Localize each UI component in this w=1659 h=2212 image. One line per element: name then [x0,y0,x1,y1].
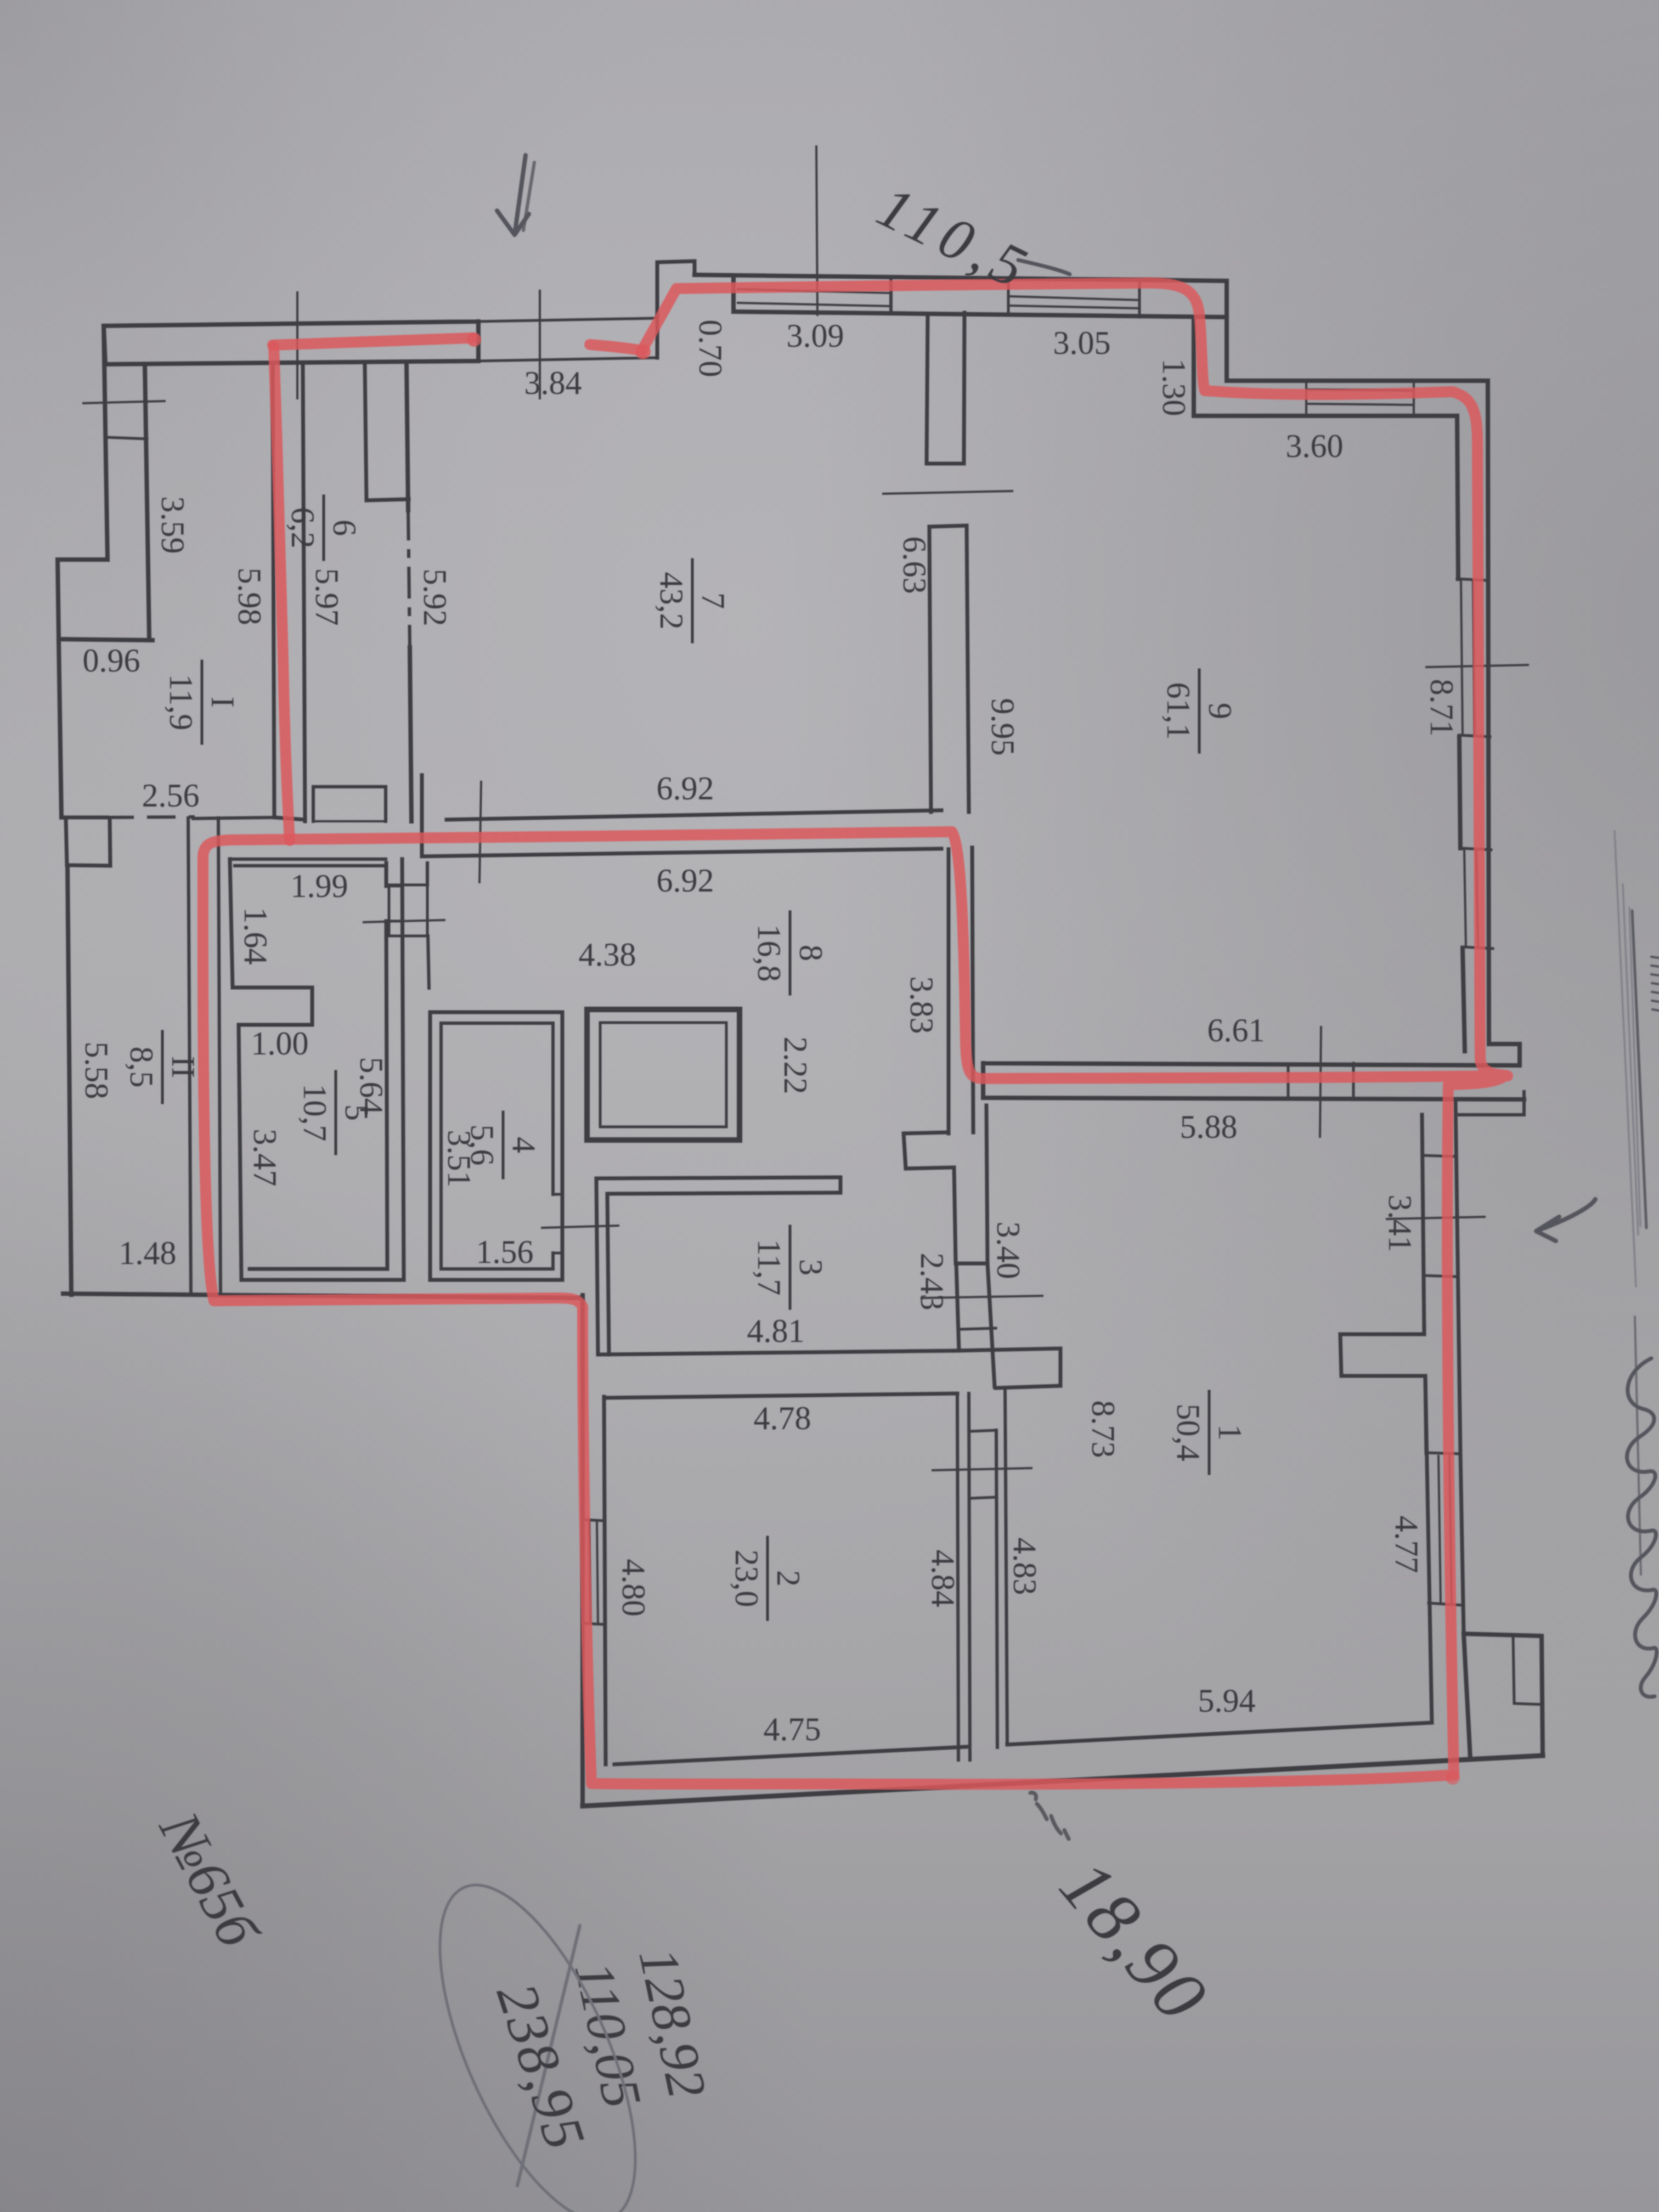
svg-text:5.94: 5.94 [1198,1683,1256,1719]
svg-text:5.88: 5.88 [1180,1109,1238,1145]
svg-text:1: 1 [1212,1424,1248,1441]
svg-text:6.92: 6.92 [657,862,714,899]
svg-text:4.84: 4.84 [925,1550,961,1607]
svg-text:4.81: 4.81 [747,1313,805,1349]
svg-text:2.56: 2.56 [142,777,200,814]
svg-text:11,9: 11,9 [163,674,199,731]
svg-text:3.60: 3.60 [1286,428,1344,464]
svg-text:61,1: 61,1 [1160,682,1197,740]
svg-text:I: I [205,697,241,708]
svg-text:4.80: 4.80 [616,1559,652,1617]
svg-text:7: 7 [695,592,731,609]
svg-text:8: 8 [793,945,829,961]
svg-text:4.75: 4.75 [764,1711,821,1747]
svg-text:3.40: 3.40 [990,1222,1026,1279]
svg-text:1.30: 1.30 [1156,359,1192,416]
svg-text:11,7: 11,7 [751,1239,787,1296]
svg-text:23,0: 23,0 [729,1550,765,1607]
svg-text:3.59: 3.59 [155,496,191,554]
svg-text:6.63: 6.63 [896,537,933,594]
svg-text:16,8: 16,8 [751,924,787,982]
svg-text:9: 9 [1202,703,1238,719]
svg-text:6.61: 6.61 [1207,1012,1265,1048]
svg-text:5.97: 5.97 [309,568,345,626]
svg-text:1.64: 1.64 [238,907,274,965]
svg-text:4.77: 4.77 [1389,1516,1425,1573]
svg-text:9.95: 9.95 [985,698,1021,756]
svg-text:3.83: 3.83 [904,977,940,1034]
svg-text:2.43: 2.43 [914,1253,950,1311]
svg-text:0.70: 0.70 [692,320,729,377]
svg-text:1.56: 1.56 [476,1234,534,1270]
svg-text:4.83: 4.83 [1007,1538,1043,1595]
svg-text:1.48: 1.48 [119,1235,177,1271]
svg-text:5: 5 [338,1104,375,1121]
svg-text:50,4: 50,4 [1170,1404,1206,1462]
svg-text:1.99: 1.99 [291,868,348,904]
svg-text:6.92: 6.92 [657,770,714,806]
svg-text:II: II [165,1056,201,1078]
svg-text:4.78: 4.78 [754,1400,811,1436]
svg-text:43,2: 43,2 [653,572,690,630]
svg-text:5.58: 5.58 [78,1042,115,1099]
svg-text:3.41: 3.41 [1382,1195,1418,1252]
svg-text:10,7: 10,7 [297,1084,333,1142]
svg-text:2: 2 [770,1570,806,1587]
svg-text:1.00: 1.00 [251,1025,309,1062]
svg-text:3.47: 3.47 [247,1129,283,1187]
svg-text:6,2: 6,2 [285,507,321,549]
svg-text:5,6: 5,6 [464,1125,500,1166]
svg-text:8,5: 8,5 [123,1047,160,1088]
svg-text:4: 4 [506,1137,542,1153]
svg-text:5.92: 5.92 [417,569,453,627]
svg-text:6: 6 [326,520,363,536]
svg-text:4.38: 4.38 [579,936,636,973]
svg-text:3.84: 3.84 [524,365,582,401]
svg-text:3: 3 [793,1259,829,1276]
svg-text:5.98: 5.98 [232,568,268,625]
svg-text:8.73: 8.73 [1085,1401,1121,1458]
svg-text:2.22: 2.22 [777,1037,814,1094]
svg-text:3.09: 3.09 [787,318,844,354]
svg-text:3.05: 3.05 [1053,325,1111,361]
svg-text:0.96: 0.96 [83,642,140,679]
svg-text:8.71: 8.71 [1424,679,1460,737]
